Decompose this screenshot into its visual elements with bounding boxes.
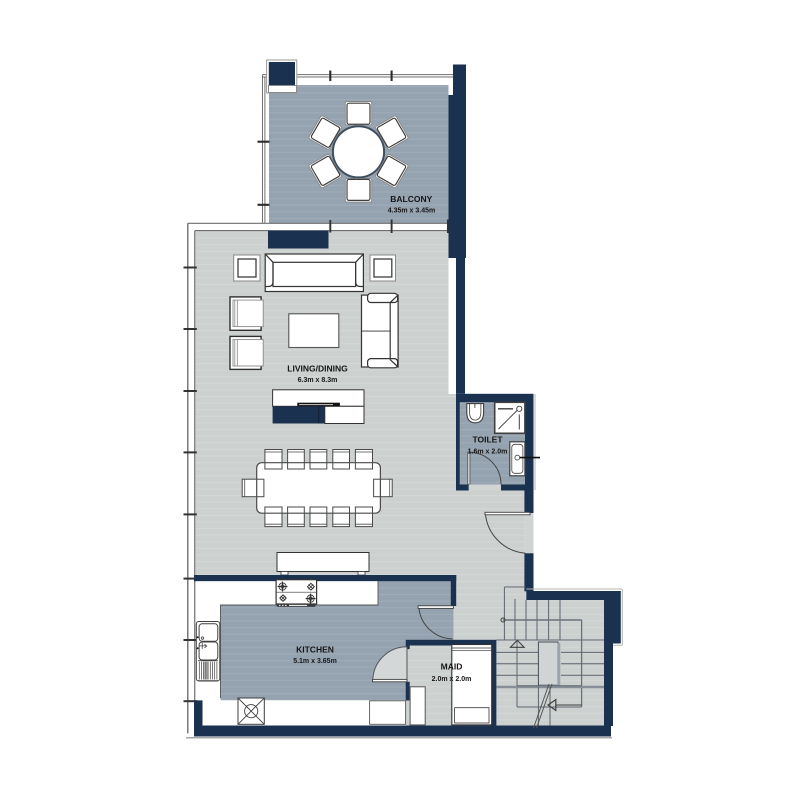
svg-text:2.0m x 2.0m: 2.0m x 2.0m xyxy=(432,676,472,683)
svg-text:1.6m x 2.0m: 1.6m x 2.0m xyxy=(468,449,508,456)
svg-text:TOILET: TOILET xyxy=(472,435,503,445)
svg-text:5.1m x 3.65m: 5.1m x 3.65m xyxy=(293,658,337,665)
svg-text:BALCONY: BALCONY xyxy=(390,194,432,204)
svg-text:LIVING/DINING: LIVING/DINING xyxy=(287,364,348,374)
svg-text:6.3m x 8.3m: 6.3m x 8.3m xyxy=(298,377,338,384)
svg-text:4.35m x 3.45m: 4.35m x 3.45m xyxy=(388,208,435,215)
svg-text:KITCHEN: KITCHEN xyxy=(296,645,334,655)
svg-text:MAID: MAID xyxy=(441,662,463,672)
